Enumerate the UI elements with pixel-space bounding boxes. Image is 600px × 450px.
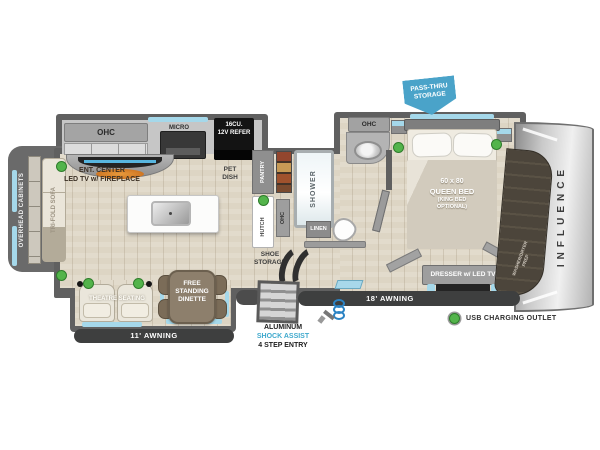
dresser-label: DRESSER w/ LED TV	[422, 265, 504, 285]
usb-outlet-dot-theatre-right	[133, 278, 144, 289]
bed-label-line2: QUEEN BED	[407, 187, 497, 196]
usb-legend-label: USB CHARGING OUTLET	[466, 315, 600, 322]
theatre-seating-label: THEATRE SEATING	[76, 296, 158, 302]
bath-ohc-label: OHC	[348, 117, 390, 132]
theatre-seat-right	[117, 284, 153, 322]
island-sink-drain	[169, 212, 172, 215]
hutch-label: HUTCH	[257, 205, 269, 249]
pantry-shelves	[276, 151, 292, 193]
kitchen-ohc-label: OHC	[64, 123, 148, 142]
bed-label-line3: (KING BED	[407, 197, 497, 203]
usb-outlet-dot-sofa	[56, 270, 67, 281]
shower-label: SHOWER	[308, 154, 320, 224]
usb-outlet-dot-hutch	[258, 195, 269, 206]
overhead-cabinets-strip	[28, 156, 41, 264]
bed-label-line1: 60 x 80	[407, 178, 497, 185]
refrigerator-label-line1: 16CU.	[214, 122, 254, 130]
usb-outlet-dot-bed-left	[393, 142, 404, 153]
entry-label-line3: 4 STEP ENTRY	[248, 342, 318, 349]
pet-dish-label-line2: DISH	[212, 174, 248, 181]
hutch-ohc-label: OHC	[277, 201, 289, 235]
cupholder-dot-right	[146, 281, 152, 287]
theatre-seat-left	[79, 284, 115, 322]
kitchen-window	[148, 117, 208, 122]
overhead-cabinets-label: OVERHEAD CABINETS	[16, 154, 28, 266]
brand-name-label: INFLUENCE	[555, 136, 569, 296]
theatre-seat-right-cushion	[121, 303, 149, 318]
floorplan-diagram: OVERHEAD CABINETS TRI-FOLD SOFA OHC MICR…	[0, 0, 600, 450]
entry-door-threshold	[335, 280, 364, 289]
theatre-window-left	[82, 322, 142, 327]
ent-center-label-line2: LED TV w/ FIREPLACE	[36, 176, 168, 183]
usb-legend-dot	[449, 313, 460, 324]
theatre-seat-left-cushion	[83, 303, 111, 318]
usb-outlet-dot-theatre-left	[83, 278, 94, 289]
dinette-label-line2: STANDING	[168, 288, 216, 295]
bath-door-wall-stub	[386, 150, 392, 190]
bed-pillow-right	[453, 132, 494, 157]
entry-label-line2: SHOCK ASSIST	[248, 333, 318, 340]
dinette-label-line3: DINETTE	[168, 296, 216, 303]
power-cord-coil-3	[333, 311, 345, 320]
pet-dish-label-line1: PET	[212, 166, 248, 173]
bath-sink	[354, 141, 382, 160]
power-cord-plug-head	[317, 315, 325, 324]
awning-11ft-label: 11' AWNING	[74, 329, 234, 343]
entry-steps	[256, 280, 299, 323]
dinette-label-line1: FREE	[168, 280, 216, 287]
entry-label-line1: ALUMINUM	[248, 324, 318, 331]
bed-label-line4: OPTIONAL)	[407, 204, 497, 210]
entertainment-tv-screen	[84, 160, 156, 163]
bed-pillow-left	[412, 132, 453, 157]
pantry-label: PANTRY	[257, 152, 269, 192]
refrigerator-label-line2: 12V REFER	[214, 130, 254, 138]
usb-outlet-dot-entcenter	[56, 161, 67, 172]
usb-outlet-dot-bed-right	[491, 139, 502, 150]
linen-label: LINEN	[306, 221, 331, 238]
